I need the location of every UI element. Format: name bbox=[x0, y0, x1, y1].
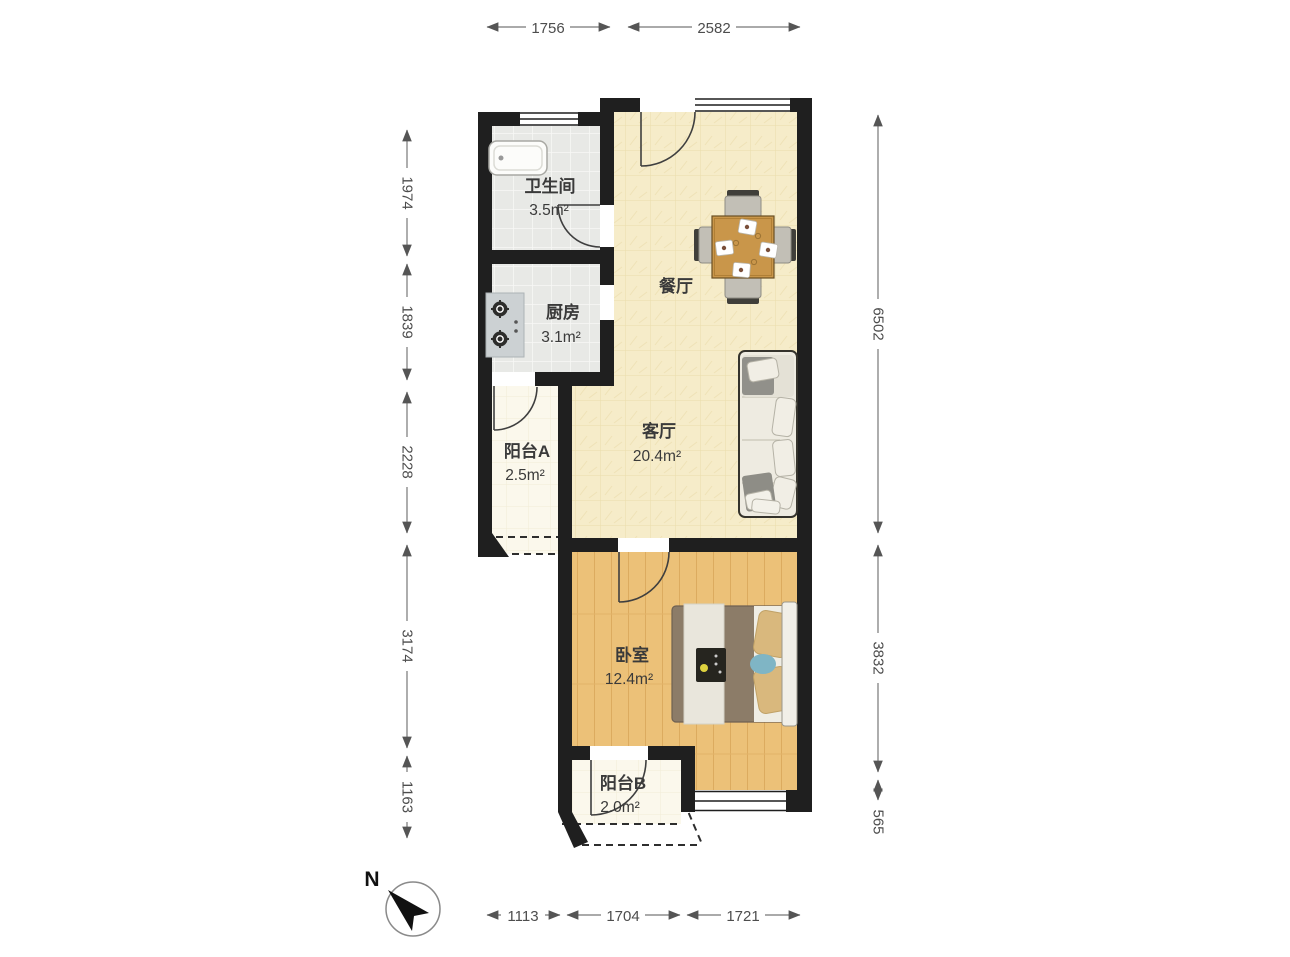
svg-text:565: 565 bbox=[870, 809, 887, 834]
svg-text:1113: 1113 bbox=[507, 908, 538, 925]
bathroom-area: 3.5m² bbox=[529, 202, 569, 219]
dimension-left-4: 3174 bbox=[398, 545, 416, 748]
bedroom-window bbox=[695, 790, 786, 812]
svg-text:2582: 2582 bbox=[697, 20, 730, 37]
dimension-right-2: 3832 bbox=[869, 545, 887, 772]
bedroom-label: 卧室 bbox=[615, 645, 649, 665]
dining-label: 餐厅 bbox=[659, 276, 693, 296]
bedroom-area: 12.4m² bbox=[605, 671, 653, 688]
dimension-left-5: 1163 bbox=[398, 756, 416, 838]
dimension-left-2: 1839 bbox=[398, 264, 416, 380]
bedroom-door-opening bbox=[618, 538, 669, 552]
svg-text:3174: 3174 bbox=[399, 629, 416, 662]
wall-living-bedroom-divider bbox=[558, 538, 812, 552]
kitchen-area: 3.1m² bbox=[541, 329, 581, 346]
balcony-b-label: 阳台B bbox=[600, 773, 646, 793]
bathroom-label: 卫生间 bbox=[525, 176, 576, 196]
dimension-top-2: 2582 bbox=[628, 18, 800, 37]
compass-north-label: N bbox=[364, 868, 379, 891]
svg-text:2228: 2228 bbox=[399, 445, 416, 478]
living-area: 20.4m² bbox=[633, 448, 681, 465]
entry-door-opening bbox=[640, 98, 695, 112]
svg-text:1839: 1839 bbox=[399, 305, 416, 338]
floor-plan-svg: 卫生间 3.5m² 厨房 3.1m² 餐厅 客厅 20.4m² 阳台A 2.5m… bbox=[0, 0, 1290, 952]
kitchen-label: 厨房 bbox=[546, 302, 580, 322]
bed bbox=[672, 602, 797, 726]
bathtub bbox=[489, 141, 547, 175]
balcony-a-area: 2.5m² bbox=[505, 467, 545, 484]
wall-bottom-right-corner bbox=[786, 790, 812, 812]
wall-balcony-b-top-left bbox=[558, 746, 590, 760]
svg-text:1704: 1704 bbox=[606, 908, 639, 925]
dimension-right-1: 6502 bbox=[869, 115, 887, 533]
dimension-bottom-1: 1113 bbox=[487, 906, 560, 925]
balcony-b-door-opening bbox=[590, 746, 648, 760]
svg-text:6502: 6502 bbox=[870, 307, 887, 340]
svg-text:3832: 3832 bbox=[870, 641, 887, 674]
compass: N bbox=[364, 868, 440, 936]
kitchen-passage-opening bbox=[600, 285, 614, 320]
balcony-a-door-opening bbox=[492, 372, 535, 386]
dimension-left-3: 2228 bbox=[398, 392, 416, 533]
dimension-right-3: 565 bbox=[870, 780, 887, 835]
wall-right-outer bbox=[797, 98, 812, 812]
svg-text:1756: 1756 bbox=[531, 20, 564, 37]
balcony-b-area: 2.0m² bbox=[600, 799, 640, 816]
dimension-bottom-3: 1721 bbox=[687, 906, 800, 925]
dimension-left-1: 1974 bbox=[398, 130, 416, 256]
svg-text:1974: 1974 bbox=[399, 176, 416, 209]
dimension-bottom-2: 1704 bbox=[567, 906, 680, 925]
bathroom-door-opening bbox=[600, 205, 614, 247]
dining-window bbox=[695, 98, 790, 112]
sofa bbox=[739, 351, 797, 517]
wall-kitchen-bottom bbox=[535, 372, 614, 386]
stove bbox=[486, 293, 524, 357]
svg-text:1721: 1721 bbox=[726, 908, 759, 925]
svg-text:1163: 1163 bbox=[399, 781, 416, 813]
bathroom-window bbox=[520, 112, 578, 126]
balcony-a-label: 阳台A bbox=[504, 441, 550, 461]
dimension-top-1: 1756 bbox=[487, 18, 610, 37]
living-label: 客厅 bbox=[641, 421, 676, 441]
wall-step-vertical bbox=[681, 746, 695, 812]
wall-bathroom-kitchen-divider bbox=[478, 250, 614, 264]
floor-plan-canvas: 卫生间 3.5m² 厨房 3.1m² 餐厅 客厅 20.4m² 阳台A 2.5m… bbox=[0, 0, 1290, 957]
